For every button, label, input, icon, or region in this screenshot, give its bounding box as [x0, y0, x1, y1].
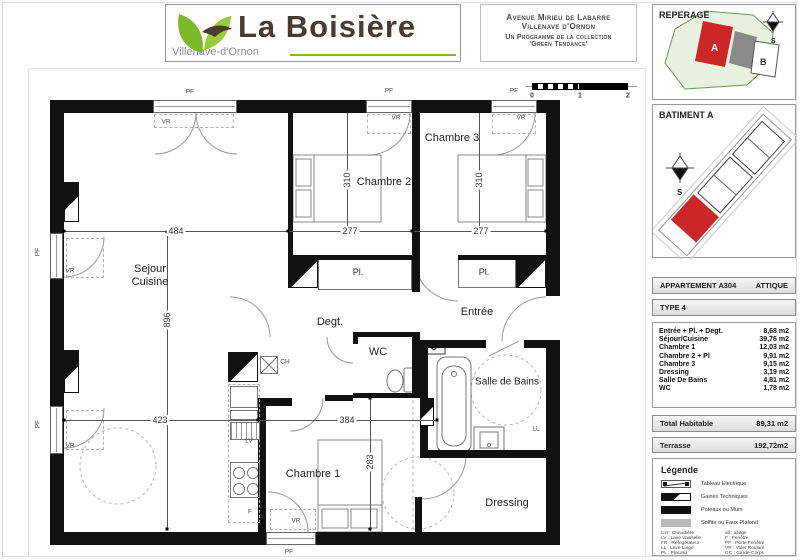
room-label-entree: Entrée [461, 306, 493, 318]
wall-wc-right [412, 332, 420, 398]
tag-vr: VR [65, 268, 74, 275]
tag-ch: CH [280, 359, 289, 366]
wall-hall-stub [412, 255, 420, 292]
dim-sejour-bottom: 423 [150, 415, 169, 425]
room-name: Chambre 1 [659, 344, 695, 352]
hob-box [230, 462, 260, 498]
dimension-tick [369, 528, 372, 531]
legend-item-label: Soffite ou Faux Plafond [701, 520, 758, 526]
kitchen-shelf [230, 410, 258, 420]
room-area: 9,15 m2 [763, 361, 789, 369]
wall-sdb-dressing [420, 450, 546, 458]
tag-vr: VR [516, 115, 525, 122]
dimension-tick [287, 230, 290, 233]
dim-chambre3-width: 277 [471, 226, 490, 236]
room-label-cuisine: Cuisine [132, 276, 169, 288]
terrasse-label: Terrasse [660, 441, 691, 450]
dimension-tick [411, 230, 414, 233]
room-label-wc: WC [369, 346, 387, 358]
dim-chambre1-height: 283 [365, 452, 375, 471]
tag-pf: PF [285, 549, 293, 556]
dim-chambre1-width: 384 [337, 415, 356, 425]
room-label-chambre2: Chambre 2 [357, 176, 411, 188]
gaines-box [64, 182, 79, 222]
dimension-tick [63, 419, 66, 422]
room-area: 4,81 m2 [763, 377, 789, 385]
total-value: 89,31 m2 [756, 419, 788, 428]
wall-dressing-left [415, 497, 422, 535]
dim-chambre3-height: 310 [474, 170, 484, 189]
tag-pf: PF [510, 88, 518, 95]
room-area-row: WC1,78 m2 [653, 385, 795, 393]
boiler-box [260, 356, 278, 374]
dimension-tick [63, 230, 66, 233]
wall-chambre2-chambre3 [412, 113, 420, 260]
room-label-chambre1: Chambre 1 [286, 468, 340, 480]
room-label-sejour: Sejour [134, 263, 166, 275]
room-area: 1,78 m2 [763, 385, 789, 393]
compass-south-label: S [771, 38, 776, 45]
room-area-row: Chambre 2 + Pl9,91 m2 [653, 353, 795, 361]
legend-item-label: Gaines Techniques [701, 494, 748, 500]
room-area-row: Chambre 39,15 m2 [653, 361, 795, 369]
room-area: 8,68 m2 [763, 328, 789, 336]
bathtub [437, 357, 471, 453]
dimension-tick [166, 528, 169, 531]
room-label-degt: Degt. [317, 316, 343, 328]
room-name: Chambre 2 + Pl [659, 353, 710, 361]
legend-item-label: Tableau Electrique [701, 481, 746, 487]
room-label-chambre3: Chambre 3 [425, 132, 479, 144]
room-label-placard-a: Pl. [353, 267, 364, 277]
wall-chambre1-top-a [258, 398, 292, 406]
tag-pf: PF [385, 88, 393, 95]
tag-pf: PF [35, 420, 42, 428]
room-label-dressing: Dressing [485, 497, 528, 509]
compass-south-label: S [677, 188, 683, 197]
legend-title: Légende [661, 465, 698, 475]
apartment-level: ATTIQUE [756, 281, 788, 290]
legend-panel: Légende Tableau Electrique Gaines Techni… [652, 458, 796, 556]
legend-item-label: Poteaux ou Murs [701, 507, 743, 513]
wall-wc-top [353, 332, 417, 337]
legend-soffit-icon [661, 519, 691, 527]
dimension-tick [369, 397, 372, 400]
legend-abbr: GC : Garde-Corps [725, 551, 764, 556]
reperage-title: REPERAGE [659, 10, 710, 20]
batiment-plan: S [653, 105, 797, 259]
room-area-row: Entrée + Pl. + Degt.8,68 m2 [653, 328, 795, 336]
tag-vr: VR [391, 115, 400, 122]
window-chambre1 [266, 532, 316, 545]
window-sejour-top [153, 100, 237, 113]
room-label-salle-de-bains: Salle de Bains [475, 377, 539, 388]
room-areas-panel: Entrée + Pl. + Degt.8,68 m2 Séjour/Cuisi… [652, 322, 796, 408]
fridge [230, 386, 258, 408]
terrasse-value: 192,72m2 [754, 441, 788, 450]
terrasse-bar: Terrasse 192,72m2 [652, 437, 796, 453]
room-area: 12,03 m2 [759, 344, 789, 352]
legend-wall-icon [661, 506, 691, 514]
tag-f: F [248, 509, 252, 516]
room-name: Dressing [659, 369, 689, 377]
window-chambre3 [491, 100, 537, 113]
legend-gaines-icon [661, 493, 691, 501]
apartment-number: APPARTEMENT A304 [660, 281, 736, 290]
tag-ll: LL [532, 426, 539, 433]
wall-wc-bottom [353, 393, 420, 398]
room-area: 9,91 m2 [763, 353, 789, 361]
legend-electric-panel-icon [661, 480, 691, 488]
wall-entree-sdb-a [420, 340, 486, 348]
gaines-box [420, 398, 434, 426]
turning-circles [80, 355, 541, 529]
wall-entree-sdb-b [524, 340, 546, 348]
room-label-placard-b: Pl. [479, 267, 490, 277]
dimension-tick [257, 419, 260, 422]
tag-vr: VR [65, 443, 74, 450]
room-name: Entrée + Pl. + Degt. [659, 328, 723, 336]
room-area-row: Dressing3,19 m2 [653, 369, 795, 377]
map-building-b-label: B [760, 57, 767, 67]
wall-top [50, 100, 560, 113]
wall-chambre1-top-b [325, 395, 353, 401]
total-label: Total Habitable [660, 419, 713, 428]
tag-lv: LV [245, 438, 252, 445]
apartment-bar: APPARTEMENT A304 ATTIQUE [652, 277, 796, 294]
window-sejour-left-1 [50, 233, 63, 279]
map-building-a-label: A [711, 43, 718, 54]
room-name: Séjour/Cuisine [659, 336, 708, 344]
room-area-row: Salle De Bains4,81 m2 [653, 377, 795, 385]
room-name: Chambre 3 [659, 361, 695, 369]
room-area-row: Chambre 112,03 m2 [653, 344, 795, 352]
total-bar: Total Habitable 89,31 m2 [652, 415, 796, 432]
batiment-title: BATIMENT A [659, 110, 714, 120]
tag-vr: VR [161, 119, 170, 126]
gaines-box [516, 258, 546, 288]
placard-a [318, 260, 412, 290]
dim-chambre2-height: 310 [342, 170, 352, 189]
entrance-door-opening [546, 296, 560, 340]
tag-vr: VR [291, 518, 300, 525]
wall-sejour-chambre2 [288, 113, 293, 255]
soffit-dashed-box [492, 114, 536, 134]
window-chambre2 [366, 100, 412, 113]
type-bar: TYPE 4 [652, 299, 796, 316]
gaines-box [228, 352, 258, 382]
dim-sejour-height: 896 [162, 310, 172, 329]
room-name: WC [659, 385, 671, 393]
batiment-panel: S BATIMENT A [652, 104, 796, 258]
dimension-tick [545, 230, 548, 233]
dim-chambre2-width: 277 [340, 226, 359, 236]
room-area-row: Séjour/Cuisine39,76 m2 [653, 336, 795, 344]
window-sejour-left-2 [50, 406, 63, 454]
wall-left [50, 100, 64, 545]
tag-pf: PF [35, 248, 42, 256]
compass-icon [666, 153, 694, 183]
dimension-tick [436, 419, 439, 422]
reperage-panel: A B S REPERAGE [652, 4, 796, 100]
type-label: TYPE 4 [660, 303, 686, 312]
room-name: Salle De Bains [659, 377, 707, 385]
room-area: 39,76 m2 [759, 336, 789, 344]
dim-sejour-width: 484 [166, 226, 185, 236]
legend-abbr: PL : Placard [661, 551, 687, 556]
gaines-box [64, 350, 79, 393]
tag-pf: PF [186, 89, 194, 96]
wall-wc-left-stub [353, 332, 358, 344]
gaines-box [288, 260, 318, 288]
room-area: 3,19 m2 [763, 369, 789, 377]
soffit-dashed-box [367, 114, 411, 134]
